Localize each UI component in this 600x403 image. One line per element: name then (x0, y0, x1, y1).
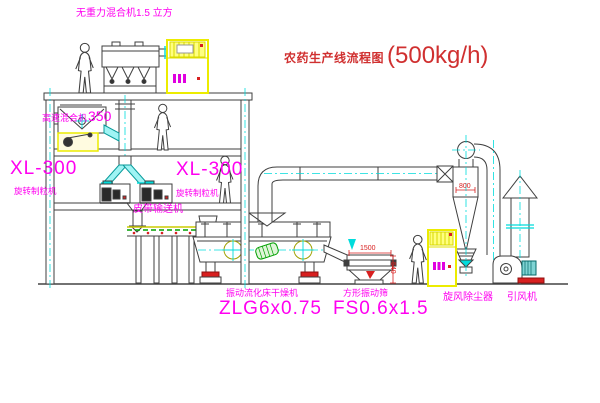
gravity-free-mixer (102, 42, 171, 93)
label-granulator-name-right: 旋转制粒机 (176, 189, 219, 198)
belt-conveyor (127, 227, 203, 283)
label-gravity-free-mixer: 无重力混合机1.5 立方 (76, 9, 173, 19)
worker-figure-second-floor (154, 104, 170, 150)
worker-figure-ground (410, 235, 427, 283)
granulators (100, 181, 172, 203)
label-sieve-name: 方形振动筛 (343, 289, 388, 298)
label-high-speed-mixer: 高速混合机 350 (42, 109, 111, 123)
label-granulator-model-left: XL-300 (10, 159, 77, 178)
label-cyclone: 旋风除尘器 (443, 293, 493, 303)
exhaust-duct (258, 167, 452, 222)
control-cabinet-2 (428, 230, 456, 286)
dimension-cyclone-width: 800 (459, 183, 471, 190)
label-granulator-name-left: 旋转制粒机 (14, 187, 57, 196)
title-capacity: (500kg/h) (387, 44, 488, 68)
label-granulator-model-right: XL-300 (176, 160, 243, 179)
process-flow-diagram: 无重力混合机1.5 立方 农药生产线流程图 (500kg/h) 高速混合机 35… (0, 0, 600, 403)
dimension-sieve-length: 1500 (360, 245, 376, 252)
worker-figure-roof (76, 43, 93, 93)
label-fan: 引风机 (507, 293, 537, 303)
fluid-bed-dryer (193, 213, 352, 283)
label-belt-conveyor: 皮带输送机 (133, 205, 183, 215)
label-dryer-name: 振动流化床干燥机 (226, 289, 298, 298)
title-text: 农药生产线流程图 (284, 52, 384, 68)
dimension-sieve-side: 540 (389, 262, 396, 274)
page-title: 农药生产线流程图 (500kg/h) (284, 44, 488, 68)
label-dryer-model: ZLG6x0.75 (219, 299, 322, 318)
label-sieve-model: FS0.6x1.5 (333, 299, 429, 318)
high-speed-mixer-size: 350 (88, 109, 111, 123)
y-branch-pipe (101, 156, 149, 183)
high-speed-mixer-name: 高速混合机 (42, 114, 87, 123)
control-cabinet-top (167, 40, 208, 93)
induced-draft-fan (493, 256, 544, 283)
